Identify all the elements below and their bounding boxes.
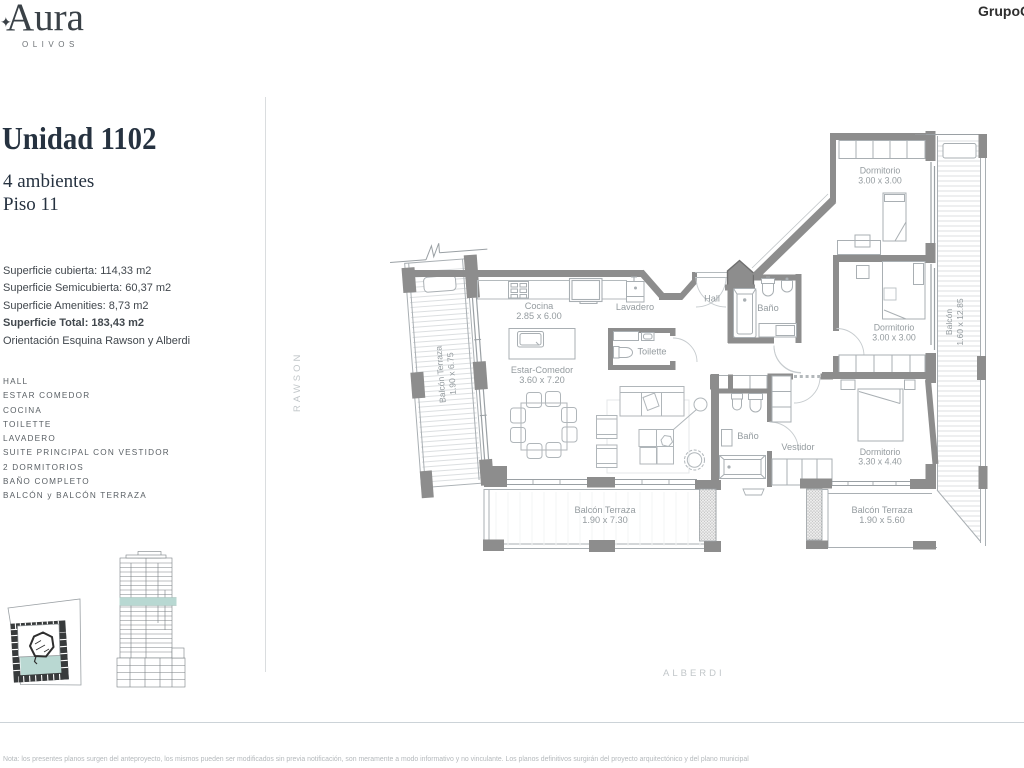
svg-text:Dormitorio: Dormitorio — [860, 447, 901, 457]
svg-text:2.85 x 6.00: 2.85 x 6.00 — [516, 311, 561, 321]
svg-text:1.60 x 12.85: 1.60 x 12.85 — [955, 298, 965, 346]
svg-text:3.00 x 3.00: 3.00 x 3.00 — [858, 176, 902, 186]
svg-text:Estar-Comedor: Estar-Comedor — [511, 365, 573, 375]
svg-text:1.90 x 5.60: 1.90 x 5.60 — [859, 515, 904, 525]
svg-text:Toilette: Toilette — [637, 347, 666, 357]
svg-text:Balcón Terraza: Balcón Terraza — [574, 505, 636, 515]
svg-text:Baño: Baño — [757, 303, 778, 313]
svg-text:Cocina: Cocina — [525, 301, 554, 311]
svg-text:Dormitorio: Dormitorio — [860, 166, 901, 176]
svg-text:1.90 x 6.75: 1.90 x 6.75 — [445, 352, 458, 395]
svg-text:Balcón: Balcón — [944, 309, 954, 335]
svg-text:Balcón Terraza: Balcón Terraza — [851, 505, 913, 515]
svg-text:Vestidor: Vestidor — [781, 442, 814, 452]
svg-text:3.60 x 7.20: 3.60 x 7.20 — [519, 375, 564, 385]
svg-text:Dormitorio: Dormitorio — [874, 323, 915, 333]
svg-text:3.00 x 3.00: 3.00 x 3.00 — [872, 333, 916, 343]
svg-text:Hall: Hall — [704, 294, 720, 304]
svg-text:1.90 x 7.30: 1.90 x 7.30 — [582, 515, 627, 525]
svg-text:3.30 x 4.40: 3.30 x 4.40 — [858, 457, 902, 467]
svg-text:Lavadero: Lavadero — [616, 302, 654, 312]
svg-text:Baño: Baño — [737, 431, 758, 441]
